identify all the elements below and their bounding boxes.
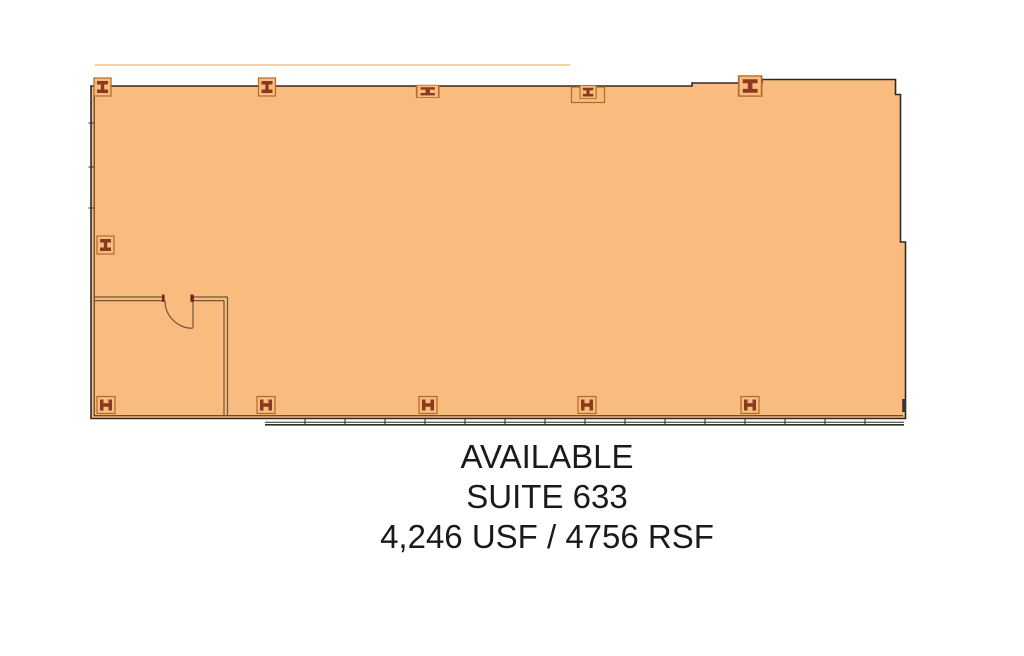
wall-end-mark (902, 399, 906, 412)
availability-status-text: AVAILABLE (70, 437, 1024, 477)
label-block: AVAILABLE SUITE 633 4,246 USF / 4756 RSF (70, 437, 1024, 557)
suite-outline (91, 80, 906, 419)
area-text: 4,246 USF / 4756 RSF (70, 517, 1024, 557)
door-jamb-mark-right (190, 295, 193, 302)
column-symbol-icon (572, 86, 605, 103)
column-symbol-icon (739, 76, 762, 96)
door-jamb-mark-left (162, 295, 165, 302)
column-symbol-icon (578, 397, 596, 414)
column-symbol-icon (419, 397, 437, 414)
column-symbol-icon (741, 397, 759, 414)
column-symbol-icon (94, 78, 111, 96)
column-symbol-icon (257, 397, 275, 414)
column-symbol-icon (97, 397, 115, 414)
floor-plan (0, 0, 1024, 656)
column-symbol-icon (259, 78, 276, 96)
column-symbol-icon (97, 236, 114, 254)
floor-plan-page: AVAILABLE SUITE 633 4,246 USF / 4756 RSF (0, 0, 1024, 656)
column-symbol-icon (417, 85, 439, 97)
suite-number-text: SUITE 633 (70, 477, 1024, 517)
